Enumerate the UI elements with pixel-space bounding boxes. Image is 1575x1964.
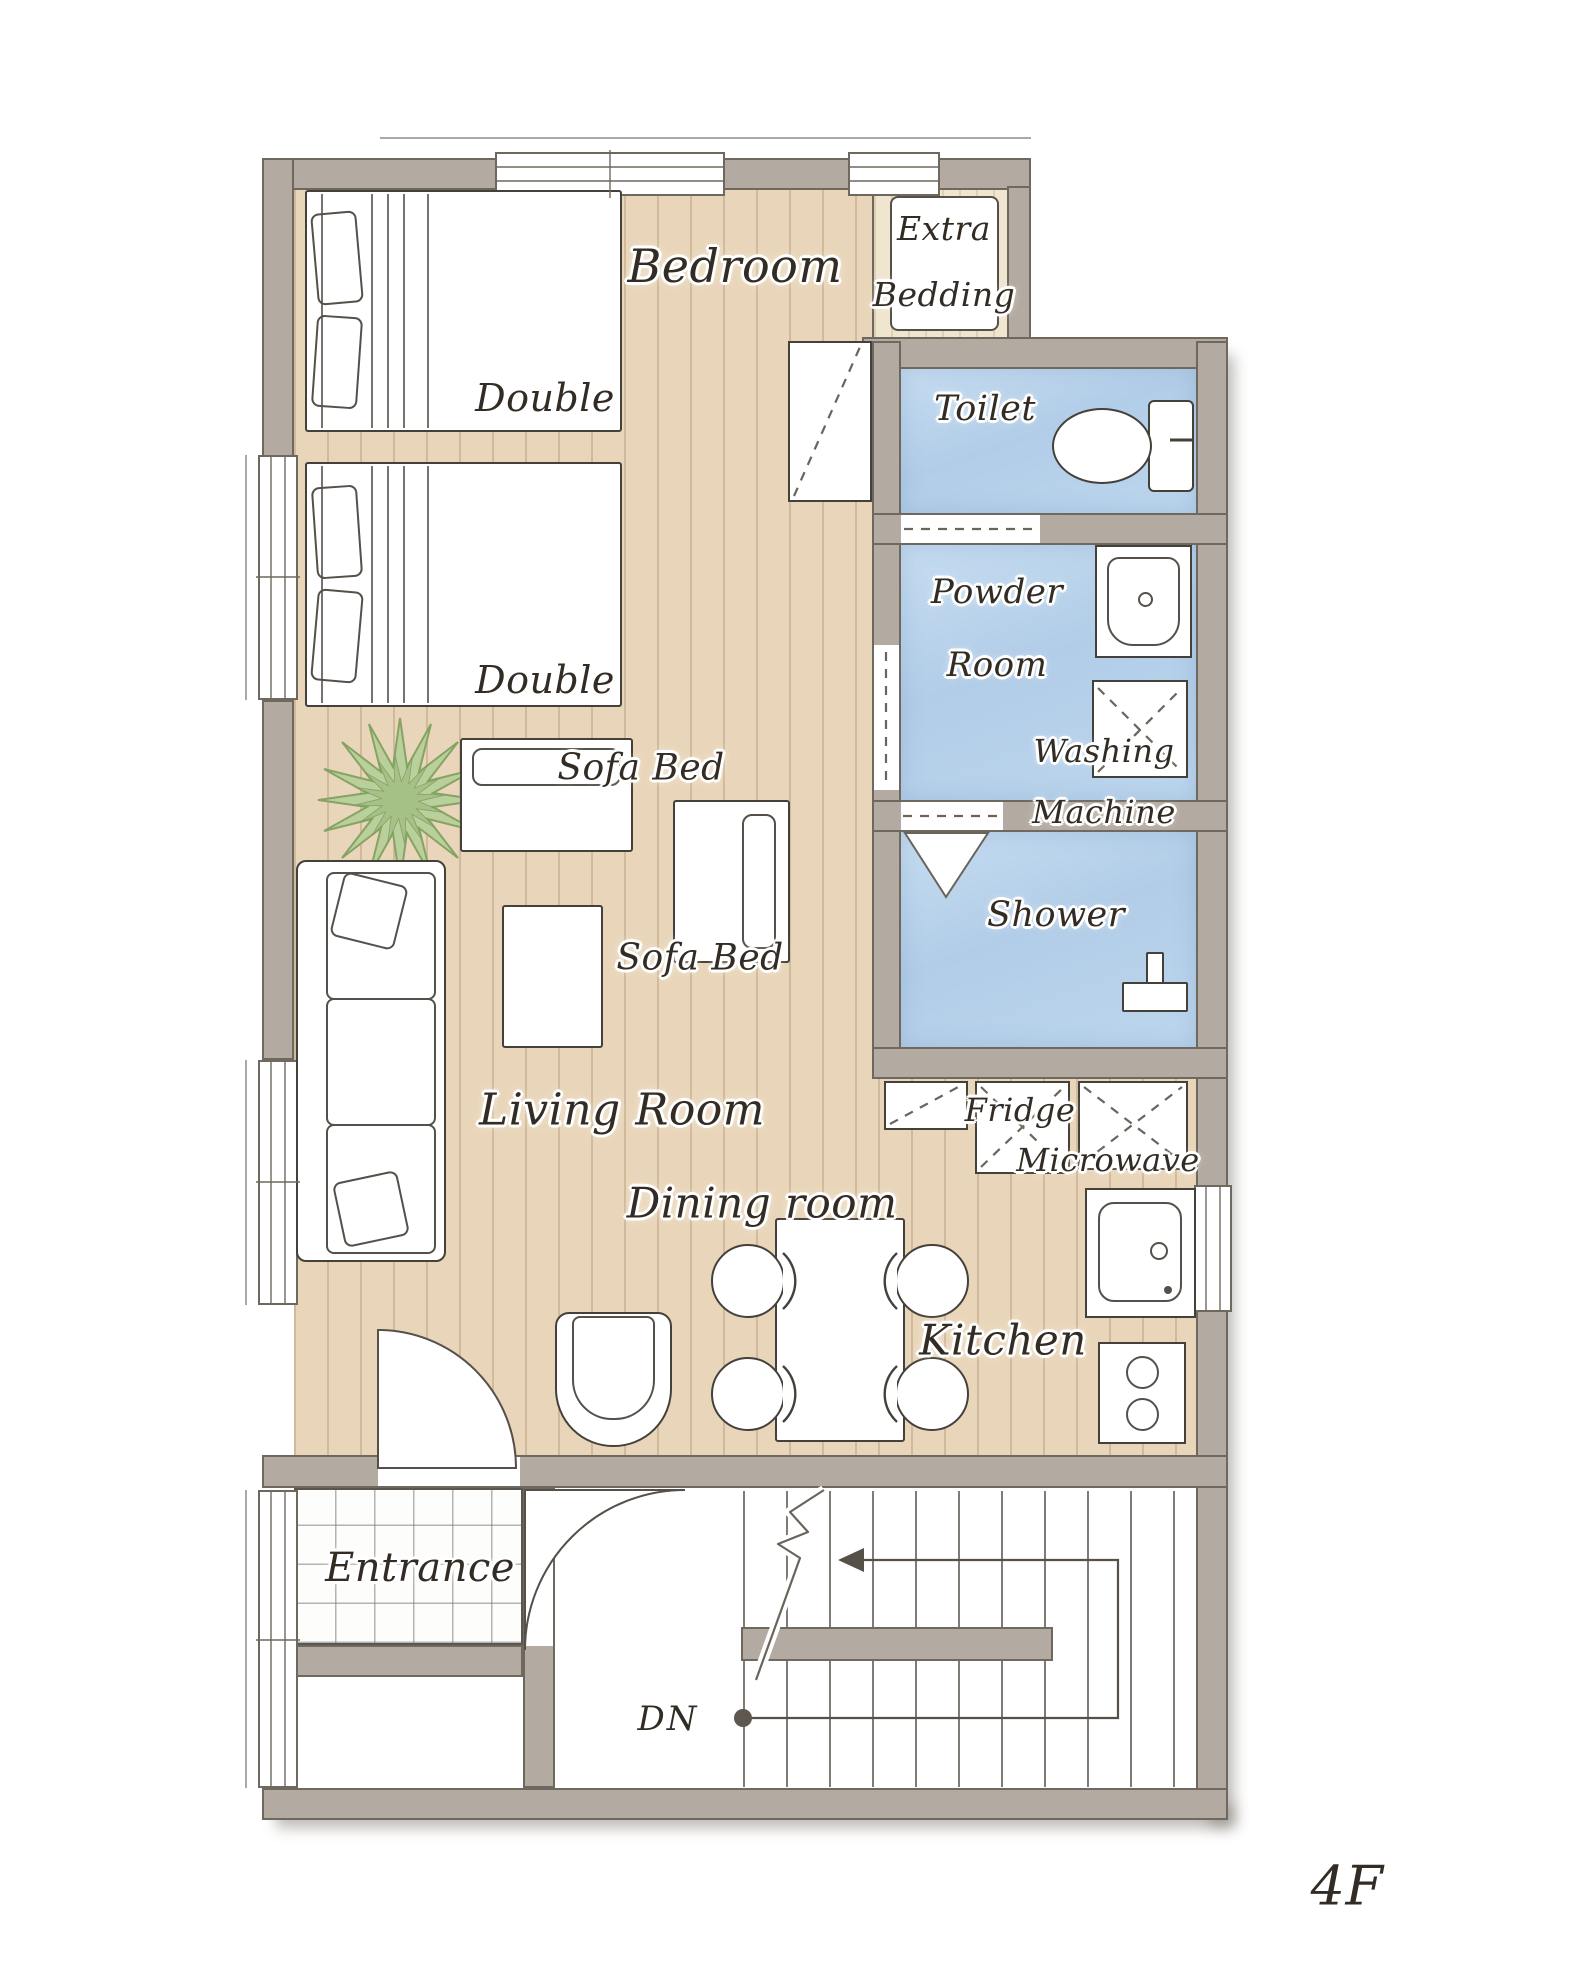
room-label-extra-bedding: Extra Bedding [873, 196, 1015, 328]
shower-door [905, 833, 988, 897]
room-label-bedroom: Bedroom [628, 239, 843, 293]
room-label-kitchen: Kitchen [919, 1316, 1087, 1365]
extra-bedding-line1: Extra [873, 196, 1015, 262]
label-microwave: Microwave [1016, 1141, 1199, 1179]
label-washing-machine: Washing Machine [1032, 721, 1176, 843]
room-label-powder-room: Powder Room [931, 556, 1063, 702]
floor-plan: Bedroom Extra Bedding Double Double Toil… [0, 0, 1575, 1964]
living-door-swing [378, 1330, 516, 1468]
label-double-bottom: Double [475, 658, 615, 702]
extra-bedding-line2: Bedding [873, 262, 1015, 328]
chair-backrest [885, 1366, 897, 1422]
chair-backrest [885, 1253, 897, 1309]
stair-handrail [742, 1628, 1052, 1660]
stair-door-swing [525, 1490, 685, 1650]
washing-machine-line2: Machine [1032, 782, 1176, 843]
label-fridge: Fridge [965, 1091, 1076, 1129]
linework-overlay [0, 0, 1575, 1964]
room-label-dining-room: Dining room [627, 1179, 898, 1228]
appliance-dashed-diagonal [890, 1086, 960, 1124]
bed-mattress-lines [322, 194, 428, 703]
label-stairs-down: DN [637, 1699, 698, 1739]
stair-walk-arrow [838, 1548, 864, 1572]
chair-backrest [783, 1253, 795, 1309]
closet-dashed-diagonal [794, 347, 860, 496]
powder-room-line1: Powder [931, 556, 1063, 629]
label-sofa-bed-top: Sofa Bed [557, 748, 724, 789]
label-double-top: Double [475, 376, 615, 420]
room-label-toilet: Toilet [934, 389, 1036, 429]
floor-indicator: 4F [1311, 1855, 1384, 1918]
room-label-entrance: Entrance [325, 1545, 515, 1591]
stair-walk-start-dot [734, 1709, 752, 1727]
room-label-shower: Shower [987, 895, 1125, 935]
room-label-living-room: Living Room [479, 1085, 765, 1136]
powder-room-line2: Room [931, 629, 1063, 702]
chair-backrest [783, 1366, 795, 1422]
washing-machine-line1: Washing [1032, 721, 1176, 782]
label-sofa-bed-right: Sofa Bed [616, 938, 783, 979]
